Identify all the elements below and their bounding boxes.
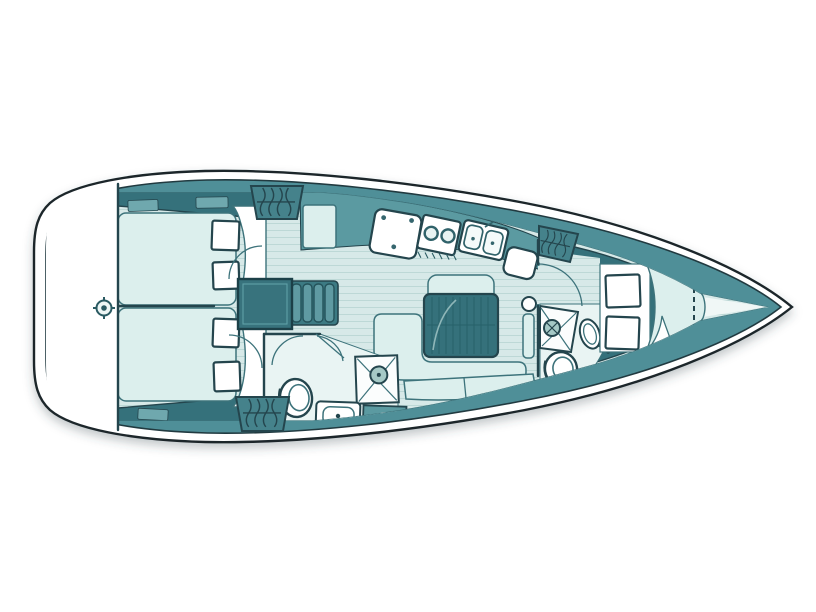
icebox <box>369 208 423 259</box>
vberth-cushion-hatch-1 <box>605 274 640 307</box>
salon-folding-table <box>424 294 498 357</box>
companionway-steps <box>288 281 338 325</box>
interior <box>118 185 770 437</box>
hanging-locker-port-aft <box>251 186 303 219</box>
vberth-cushion-hatch-2 <box>605 316 639 349</box>
hanging-locker-starboard-aft <box>236 397 289 431</box>
galley-counter-module <box>303 205 336 248</box>
galley-end-counter <box>502 246 539 281</box>
engine-box <box>238 279 292 329</box>
boat-floorplan <box>0 0 816 612</box>
bulkhead-seat-strip <box>523 314 534 358</box>
floorplan-svg <box>0 0 816 612</box>
mast-post <box>522 297 536 311</box>
shower <box>355 355 399 403</box>
